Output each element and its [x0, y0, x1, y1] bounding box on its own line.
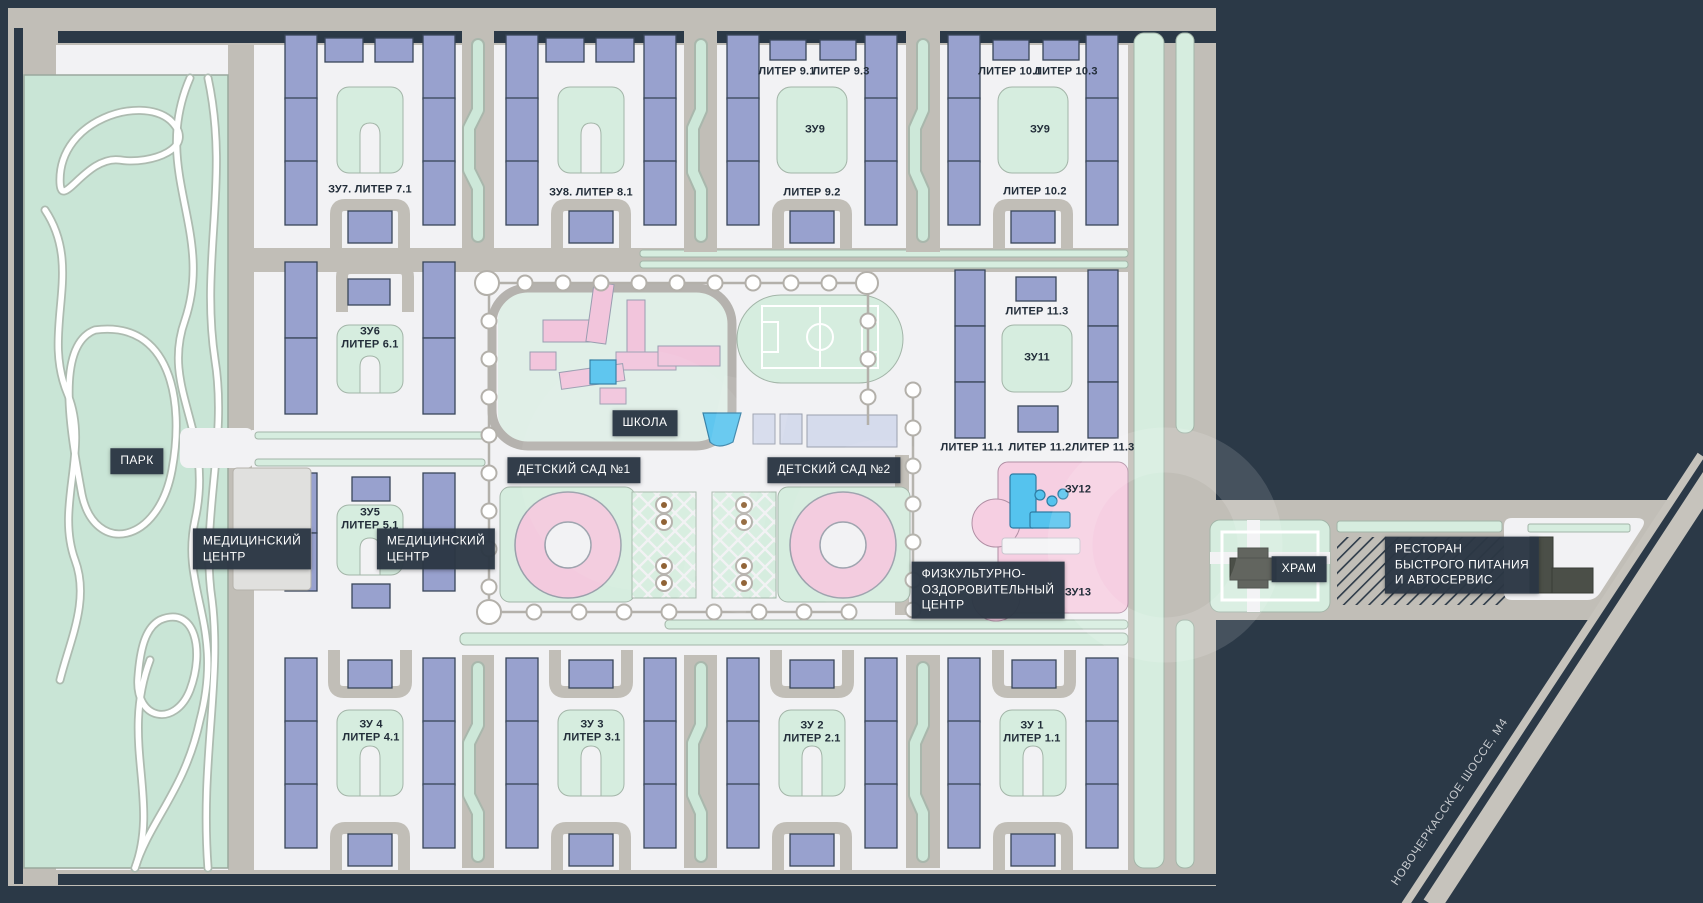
school-label: ШКОЛА: [613, 410, 678, 436]
plot-label-liter-11-3-top: ЛИТЕР 11.3: [1006, 306, 1069, 319]
temple-label: ХРАМ: [1272, 556, 1327, 582]
medical-center-label-2: МЕДИЦИНСКИЙ ЦЕНТР: [377, 528, 495, 569]
park-label: ПАРК: [110, 448, 163, 474]
stadium: [737, 295, 903, 383]
medical-center-label-1: МЕДИЦИНСКИЙ ЦЕНТР: [193, 528, 311, 569]
plot-label-zu8: ЗУ8. ЛИТЕР 8.1: [549, 187, 633, 200]
plot-label-zu11: ЗУ11: [1024, 352, 1050, 365]
plot-label-zu12: ЗУ12: [1065, 484, 1091, 497]
plot-label-zu13: ЗУ13: [1065, 587, 1091, 600]
plot-label-liter-9-3: ЛИТЕР 9.3: [812, 66, 869, 79]
plot-label-zu5: ЗУ5 ЛИТЕР 5.1: [341, 506, 398, 531]
plot-label-liter-11-2: ЛИТЕР 11.2: [1009, 442, 1072, 455]
plot-label-zu7: ЗУ7. ЛИТЕР 7.1: [328, 184, 412, 197]
plot-label-zu9-left: ЗУ9: [805, 124, 825, 137]
plot-label-zu4: ЗУ 4 ЛИТЕР 4.1: [342, 718, 399, 743]
kindergarten1-label: ДЕТСКИЙ САД №1: [507, 457, 640, 483]
plot-label-zu2: ЗУ 2 ЛИТЕР 2.1: [783, 719, 840, 744]
plot-label-zu6: ЗУ6 ЛИТЕР 6.1: [341, 325, 398, 350]
plot-label-liter-11-3: ЛИТЕР 11.3: [1072, 442, 1135, 455]
map-canvas: [0, 0, 1703, 903]
kindergarten2-label: ДЕТСКИЙ САД №2: [767, 457, 900, 483]
plot-label-zu1: ЗУ 1 ЛИТЕР 1.1: [1003, 719, 1060, 744]
plot-label-zu9-right: ЗУ9: [1030, 124, 1050, 137]
plot-label-liter-10-3: ЛИТЕР 10.3: [1034, 66, 1097, 79]
plot-label-liter-10-2: ЛИТЕР 10.2: [1003, 186, 1066, 199]
plot-label-liter-11-1: ЛИТЕР 11.1: [941, 442, 1004, 455]
plot-label-zu3: ЗУ 3 ЛИТЕР 3.1: [563, 718, 620, 743]
fitness-center-label: ФИЗКУЛЬТУРНО- ОЗДОРОВИТЕЛЬНЫЙ ЦЕНТР: [912, 562, 1065, 619]
masterplan-map[interactable]: ПАРК ШКОЛА ДЕТСКИЙ САД №1 ДЕТСКИЙ САД №2…: [0, 0, 1703, 903]
plot-label-liter-10-1: ЛИТЕР 10.1: [978, 66, 1041, 79]
plot-label-liter-9-1: ЛИТЕР 9.1: [758, 66, 815, 79]
restaurant-label: РЕСТОРАН БЫСТРОГО ПИТАНИЯ И АВТОСЕРВИС: [1385, 537, 1539, 594]
plot-label-liter-9-2: ЛИТЕР 9.2: [783, 187, 840, 200]
